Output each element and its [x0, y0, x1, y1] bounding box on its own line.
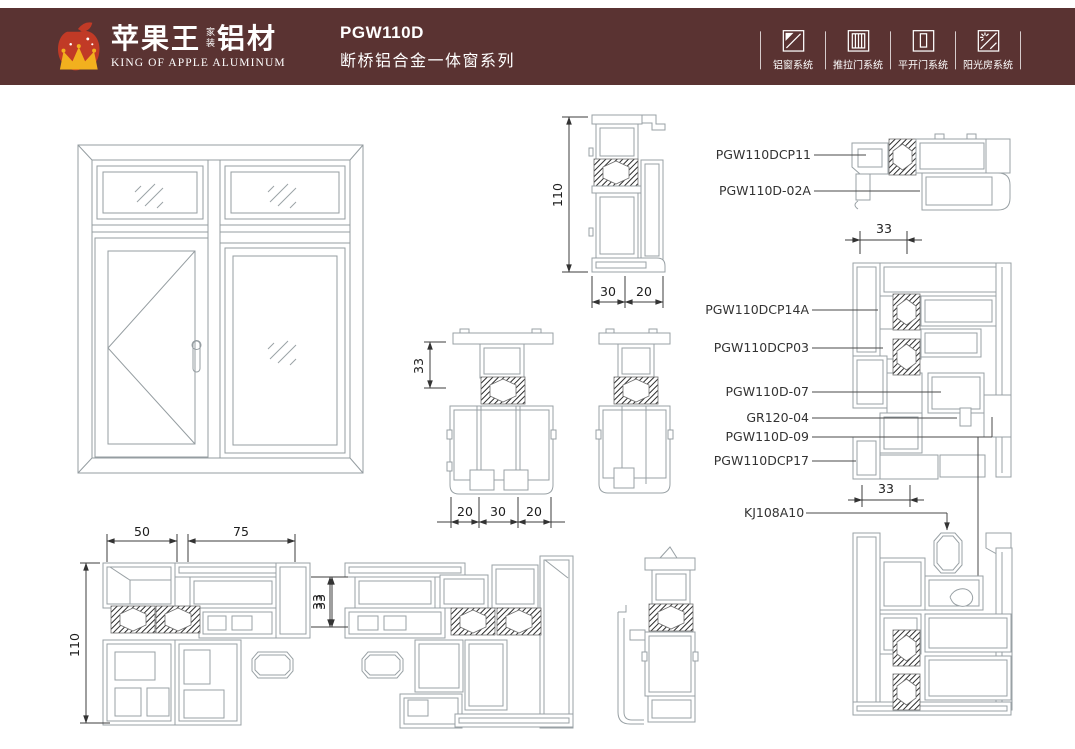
part-label-pgw110dcp03: PGW110DCP03	[714, 340, 809, 355]
dim-20-label: 20	[526, 504, 542, 519]
brand-name-en: KING OF APPLE ALUMINUM	[111, 57, 286, 69]
system-label: 推拉门系统	[833, 56, 883, 71]
thermal-break	[893, 294, 920, 330]
casement-door-icon	[912, 29, 935, 52]
system-item-sliding-door: 推拉门系统	[826, 29, 890, 71]
thermal-break	[156, 606, 200, 633]
dim-50-label: 50	[134, 524, 150, 539]
series-model: PGW110D	[340, 23, 515, 43]
corner-top-section-profile	[852, 134, 1010, 210]
connector-octagon	[934, 533, 962, 573]
dim-110-label: 110	[67, 633, 82, 657]
brand-name-cn: 苹果王	[111, 25, 201, 53]
window-elevation-drawing	[78, 145, 363, 473]
dim-33-top: 33	[845, 221, 922, 254]
sunroom-icon	[977, 29, 1000, 52]
glass-mark	[135, 184, 163, 208]
dim-110-label: 110	[550, 183, 565, 207]
series-name: 断桥铝合金一体窗系列	[340, 47, 515, 71]
gasket-hatched	[960, 408, 971, 426]
brand-logo: 苹果王 家装 铝材 KING OF APPLE ALUMINUM	[50, 16, 286, 78]
aluminum-window-icon	[782, 29, 805, 52]
dim-30-label: 30	[490, 504, 506, 519]
header-bar: 苹果王 家装 铝材 KING OF APPLE ALUMINUM PGW110D…	[0, 8, 1075, 85]
thermal-break	[594, 159, 638, 186]
part-label-pgw110dcp14a: PGW110DCP14A	[705, 302, 809, 317]
casement-sash	[95, 238, 208, 457]
system-item-sunroom: 阳光房系统	[956, 29, 1020, 71]
center-sill-section-profile	[447, 329, 556, 494]
dim-33-label: 33	[313, 594, 328, 610]
brand-tag-cn: 家装	[205, 27, 214, 49]
dim-20-label: 20	[636, 284, 652, 299]
nav-divider	[1020, 31, 1021, 69]
system-label: 铝窗系统	[773, 56, 813, 71]
drawing-area: 110 30 20 PGW110DCP11 PG	[0, 0, 1075, 744]
thermal-break	[893, 674, 920, 710]
thermal-break	[893, 630, 920, 666]
system-label: 阳光房系统	[963, 56, 1013, 71]
thermal-break	[451, 608, 495, 635]
part-label-pgw110d-07: PGW110D-07	[726, 384, 809, 399]
dim-33-label: 33	[878, 481, 894, 496]
system-label: 平开门系统	[898, 56, 948, 71]
dim-75-label: 75	[233, 524, 249, 539]
opening-direction-symbol	[108, 251, 195, 444]
dim-33-label: 33	[876, 221, 892, 236]
glass-mark	[268, 184, 296, 208]
brand-material-cn: 铝材	[217, 25, 277, 53]
head-section-profile	[589, 115, 665, 272]
dim-33-label: 33	[411, 358, 426, 374]
part-label-pgw110d-09: PGW110D-09	[726, 429, 810, 444]
part-label-gr120-04: GR120-04	[746, 410, 809, 425]
bottom-jamb-section-profile	[618, 547, 698, 724]
dim-33-bottom: 33	[848, 481, 924, 507]
dim-30-label: 30	[600, 284, 616, 299]
sill-corner-assembly-profile	[853, 533, 1012, 715]
bottom-left-assembly-profile	[103, 563, 310, 725]
window-handle	[193, 341, 200, 372]
dim-20-label: 20	[457, 504, 473, 519]
catalog-page: 苹果王 家装 铝材 KING OF APPLE ALUMINUM PGW110D…	[0, 0, 1075, 744]
product-systems-nav: 铝窗系统 推拉门系统 平开门系统	[760, 29, 1021, 71]
series-title-block: PGW110D 断桥铝合金一体窗系列	[340, 23, 515, 71]
thermal-break	[497, 608, 541, 635]
thermal-break	[649, 604, 693, 631]
glass-mark	[268, 341, 296, 365]
system-item-aluminum-window: 铝窗系统	[761, 29, 825, 71]
part-label-pgw110dcp11: PGW110DCP11	[716, 147, 811, 162]
brand-text: 苹果王 家装 铝材 KING OF APPLE ALUMINUM	[111, 25, 286, 69]
sliding-door-icon	[847, 29, 870, 52]
part-label-pgw110d-02a: PGW110D-02A	[719, 183, 811, 198]
thermal-break	[111, 606, 155, 633]
technical-drawings: 110 30 20 PGW110DCP11 PG	[0, 0, 1075, 744]
center-sill-section-small-profile	[596, 329, 673, 493]
thermal-break	[614, 377, 658, 404]
bottom-middle-assembly-profile	[345, 556, 573, 728]
thermal-break	[481, 377, 525, 404]
mullion-assembly-profile	[853, 263, 1011, 479]
thermal-break	[893, 339, 920, 375]
mullion	[208, 160, 220, 458]
part-label-pgw110dcp17: PGW110DCP17	[714, 453, 809, 468]
apple-crown-logo-icon	[50, 16, 104, 78]
part-label-kj108a10: KJ108A10	[744, 505, 804, 520]
system-item-casement-door: 平开门系统	[891, 29, 955, 71]
thermal-break	[889, 139, 916, 175]
